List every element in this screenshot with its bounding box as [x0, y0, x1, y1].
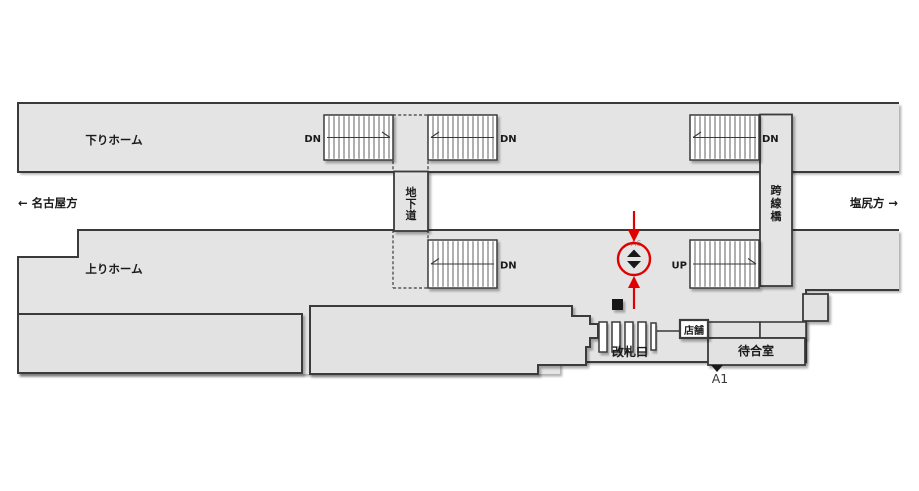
kiosk-box	[708, 322, 760, 338]
staircase-label: DN	[500, 261, 517, 272]
station-map-svg: 下りホーム上りホーム← 名古屋方塩尻方 →地下道跨線橋DNDNDNDNUP待合室…	[0, 0, 919, 491]
platform-label-down: 下りホーム	[85, 133, 143, 147]
exit-a1-marker: A1	[711, 365, 728, 386]
overpass-label: 跨	[771, 183, 783, 197]
station-building	[310, 306, 598, 374]
waiting-room-label: 待合室	[738, 343, 774, 358]
underpass-label: 道	[406, 208, 417, 222]
underpass: 地下道	[394, 172, 428, 232]
overpass-label: 線	[771, 196, 782, 210]
platform-label-up: 上りホーム	[85, 262, 143, 276]
station-map: 下りホーム上りホーム← 名古屋方塩尻方 →地下道跨線橋DNDNDNDNUP待合室…	[0, 0, 919, 491]
shop-label: 店舗	[684, 324, 704, 337]
gate-bar	[651, 323, 656, 350]
side-box	[803, 294, 828, 321]
waiting-room: 待合室	[708, 338, 805, 365]
station-building-left	[18, 314, 302, 373]
exit-a1-label: A1	[712, 371, 729, 386]
gate-label: 改札口	[612, 344, 648, 359]
staircase-label: DN	[762, 134, 779, 145]
kiosk-box	[760, 322, 806, 338]
shop: 店舗	[680, 320, 708, 338]
sign-square	[612, 299, 623, 310]
overpass-label: 橋	[771, 209, 783, 223]
staircase-label: DN	[500, 134, 517, 145]
staircase-label: UP	[672, 261, 687, 272]
staircase-label: DN	[304, 134, 321, 145]
gate-bar	[599, 322, 607, 352]
direction-label-shiojiri: 塩尻方 →	[850, 196, 899, 210]
direction-label-nagoya: ← 名古屋方	[18, 196, 78, 210]
